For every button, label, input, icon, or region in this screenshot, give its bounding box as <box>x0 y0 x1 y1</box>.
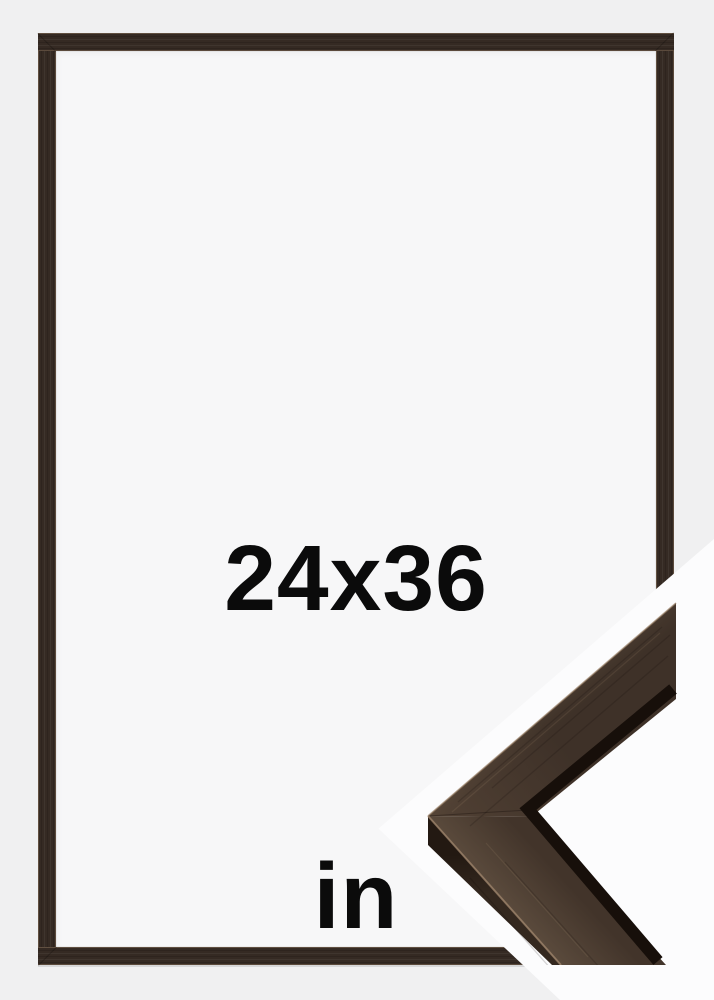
frame-corner-sample <box>0 0 714 1000</box>
frame-product-photo: 24x36 in <box>0 0 714 1000</box>
